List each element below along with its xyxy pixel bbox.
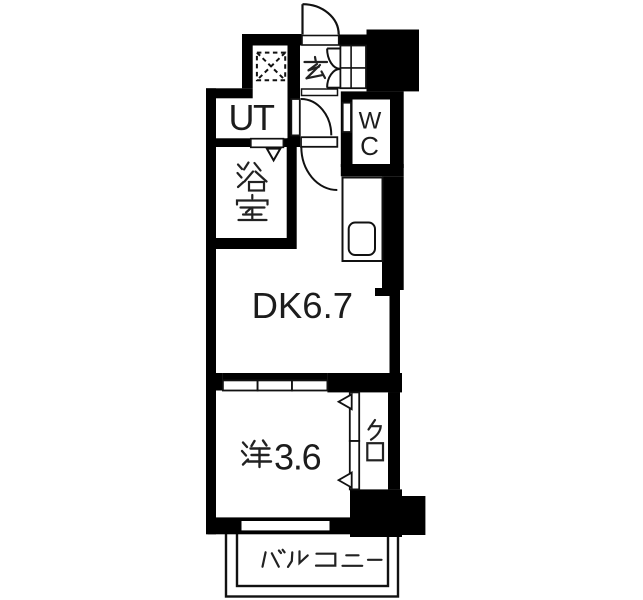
svg-text:3.6: 3.6	[274, 437, 321, 478]
svg-text:C: C	[360, 131, 379, 161]
svg-text:DK6.7: DK6.7	[252, 285, 353, 326]
svg-text:UT: UT	[229, 97, 275, 138]
